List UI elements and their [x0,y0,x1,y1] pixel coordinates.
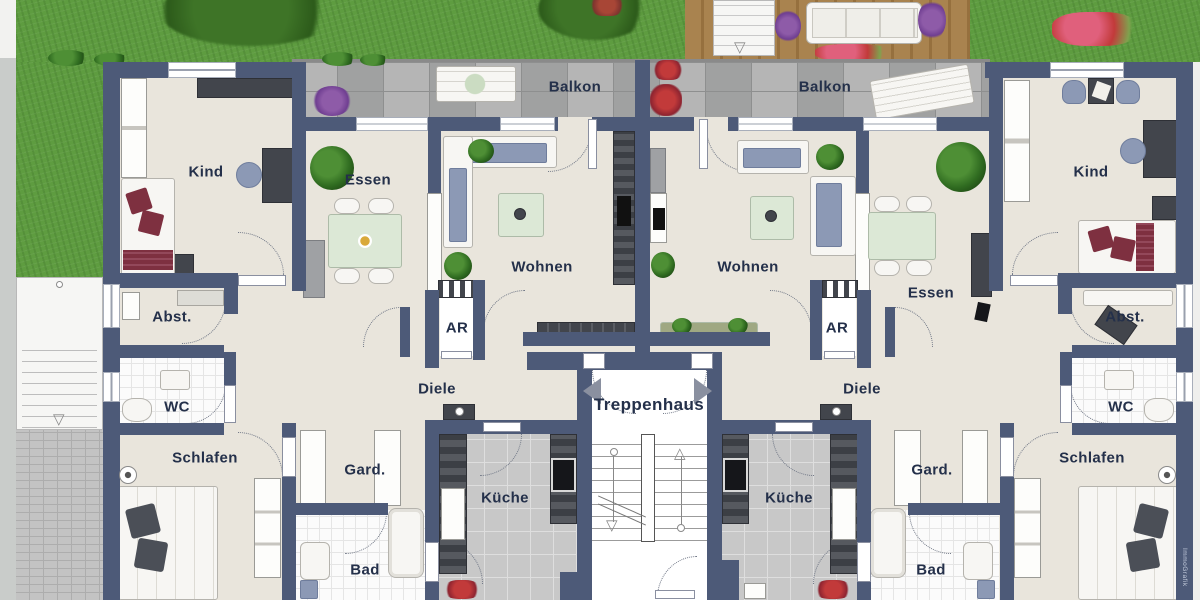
kueche-right-cooktop-icon [723,458,748,492]
wc-right-door [1060,385,1072,423]
room-label-kueche-right: Küche [765,490,813,507]
schlafen-right-wardrobe [1014,478,1041,578]
essen-left-bowl-icon [358,234,372,248]
schlafen-left-bed [118,486,218,600]
window-kind-left [168,62,236,78]
schlafen-right-pillow2 [1126,538,1161,573]
room-label-balkon-right: Balkon [799,79,851,96]
kueche-right-door [775,422,813,432]
window-wc-right [1176,372,1193,402]
wohnen-left-table-decor [514,208,526,220]
wallbox-plant1-icon [48,50,88,66]
kind-right-chair1 [1062,80,1086,104]
exterior-stairs-down-arrow-icon: ▽ [53,412,65,427]
kueche-right-flowers-icon [815,580,851,599]
window-abst-right [1176,284,1193,328]
kind-left-chair [236,162,262,188]
path-strip-left [0,0,16,600]
room-label-wohnen-left: Wohnen [511,259,572,276]
apartment-left-entry-door [583,353,605,369]
essen-right-table [868,212,936,260]
balcony-door-left-leaf [588,119,597,169]
balcony-table-base-icon [462,72,488,96]
window-wohnen-left [500,117,555,131]
room-label-ar-left: AR [446,320,468,337]
abst-left-shelf [122,292,140,320]
room-label-diele-right: Diele [843,381,881,398]
schlafen-left-door [282,437,296,477]
terrace-stairs-down-arrow-icon: ▽ [734,40,746,55]
stair-post-top-icon [610,448,618,456]
wohnen-right-table-decor [765,210,777,222]
essen-left-chair1 [334,198,360,214]
stair-guide-up [681,456,682,528]
kueche-left-cooktop-icon [551,458,576,492]
balcony-door-right-leaf [699,119,708,169]
schlafen-left-wardrobe [254,478,281,578]
window-wohnen-right [738,117,793,131]
wohnen-left-plant-bottom-icon [444,252,472,280]
kind-left-door [238,275,286,286]
tv-left-icon [617,196,631,226]
ar-right-shoe-cabinet [822,280,858,298]
tv-right-icon [653,208,665,230]
lawn-left-column [16,62,103,277]
wc-right-sink [1104,370,1134,390]
apartment-right-entry-door [691,353,713,369]
wallbox-plant4-icon [360,54,388,66]
ar-right-door [824,351,855,359]
kind-left-desk [262,148,293,203]
balcony-door-left-gap [558,117,592,131]
deck-flowers-purple2-icon [918,0,946,40]
kind-right-nightstand [1152,196,1178,220]
essen-left-chair4 [368,268,394,284]
room-label-wc-right: WC [1108,399,1134,416]
deck-flowers-purple-icon [775,10,801,42]
exterior-stairs-post-icon [56,281,63,288]
gard-left-cabinet1 [300,430,326,506]
wardrobe-niche-left [427,193,442,291]
kind-right-blanket [1136,223,1154,271]
wc-left-door [224,385,236,423]
room-label-abst-left: Abst. [152,309,192,326]
wc-right-toilet [1144,398,1174,422]
stair-up-arrow-icon: △ [674,446,686,461]
bad-left-door [425,542,439,582]
abst-right-sideboard [1083,290,1173,306]
room-label-bad-left: Bad [350,562,380,579]
exterior-strip-right [1193,62,1200,600]
bad-right-sink [963,542,993,580]
stair-guide-down [613,456,614,522]
stair-stringer [641,434,655,542]
diele-left-washer-door-icon [455,407,464,416]
essen-right-chair3 [874,260,900,276]
window-essen-right [863,117,937,131]
stair-down-arrow-icon: ▽ [606,518,618,533]
wohnen-left-sofa-cushion-side [449,168,467,242]
room-label-balkon-left: Balkon [549,79,601,96]
schlafen-left-pillow2 [134,538,169,573]
kind-right-door [1010,275,1058,286]
essen-right-chair4 [906,260,932,276]
room-label-wohnen-right: Wohnen [717,259,778,276]
abst-left-chest [177,290,224,306]
bad-right-bathtub [870,508,906,578]
wohnen-right-plant-center-icon [651,252,675,278]
kind-left-blanket [123,250,173,270]
room-label-essen-left: Essen [345,172,391,189]
room-label-gard-left: Gard. [344,462,385,479]
essen-right-chair2 [906,196,932,212]
room-label-schlafen-right: Schlafen [1059,450,1125,467]
diele-right-washer-door-icon [832,407,841,416]
room-label-kueche-left: Küche [481,490,529,507]
room-label-gard-right: Gard. [911,462,952,479]
schlafen-right-door [1000,437,1014,477]
kind-right-chair3 [1120,138,1146,164]
wohnen-left-plant-top-icon [468,139,494,163]
bad-right-shower [977,580,995,599]
wallbox-plant3-icon [322,52,356,66]
media-wall-right-upper [650,148,666,193]
room-label-bad-right: Bad [916,562,946,579]
schlafen-left-lamp-icon [119,466,137,484]
kueche-left-flowers-icon [444,580,480,599]
room-label-essen-right: Essen [908,285,954,302]
building-entry-door [655,590,695,599]
balcony-flowers-left-icon [312,86,352,116]
kueche-left-sink-counter [441,488,465,540]
wc-left-sink [160,370,190,390]
bad-left-bathtub [388,508,424,578]
bad-left-sink [300,542,330,580]
kind-right-pillow2 [1110,236,1136,262]
window-wc-left [103,372,120,402]
kind-left-shelf [197,78,293,98]
balcony-flowers-center-icon [653,60,683,80]
floor-plan: ▽ ▽ [0,0,1200,600]
essen-left-chair3 [334,268,360,284]
room-label-treppenhaus: Treppenhaus [594,395,704,415]
wohnen-right-sofa-cushion-side [816,183,842,247]
kueche-left-door [483,422,521,432]
wohnen-right-sofa-cushion-top [743,148,801,168]
window-essen-left [356,117,428,131]
garden-sofa-cushions [812,8,918,38]
stair-post-bottom-icon [677,524,685,532]
flowerbed-top-right [1052,12,1138,46]
path-strip-left-top [0,0,16,58]
essen-right-chair1 [874,196,900,212]
essen-right-bin-icon [974,302,990,322]
room-label-diele-left: Diele [418,381,456,398]
room-label-wc-left: WC [164,399,190,416]
wc-left-toilet [122,398,152,422]
bad-right-door [857,542,871,582]
kind-right-wardrobe [1004,80,1030,202]
room-label-kind-left: Kind [189,164,224,181]
tree-blossom-icon [590,0,624,16]
kind-right-desk [1143,120,1178,178]
wohnen-right-plant-icon [816,144,844,170]
schlafen-right-lamp-icon [1158,466,1176,484]
kueche-right-sink-counter [832,488,856,540]
paved-yard-bottom-left [16,430,103,600]
room-label-ar-right: AR [826,320,848,337]
essen-right-plant-icon [936,142,986,192]
gard-right-cabinet1 [962,430,988,506]
kind-left-wardrobe [121,78,147,178]
bad-left-shower [300,580,318,599]
room-label-kind-right: Kind [1074,164,1109,181]
ar-left-door [441,351,472,359]
essen-left-cabinet [303,240,325,298]
balcony-flowers-center2-icon [650,84,682,116]
essen-left-chair2 [368,198,394,214]
room-label-abst-right: Abst. [1105,309,1145,326]
kueche-right-dishwasher [744,583,766,599]
room-label-schlafen-left: Schlafen [172,450,238,467]
window-kind-right [1050,62,1124,78]
kind-right-chair2 [1116,80,1140,104]
watermark: ImmoGrafik [1181,548,1188,587]
window-abst-left [103,284,120,328]
ar-left-shoe-cabinet [438,280,474,298]
